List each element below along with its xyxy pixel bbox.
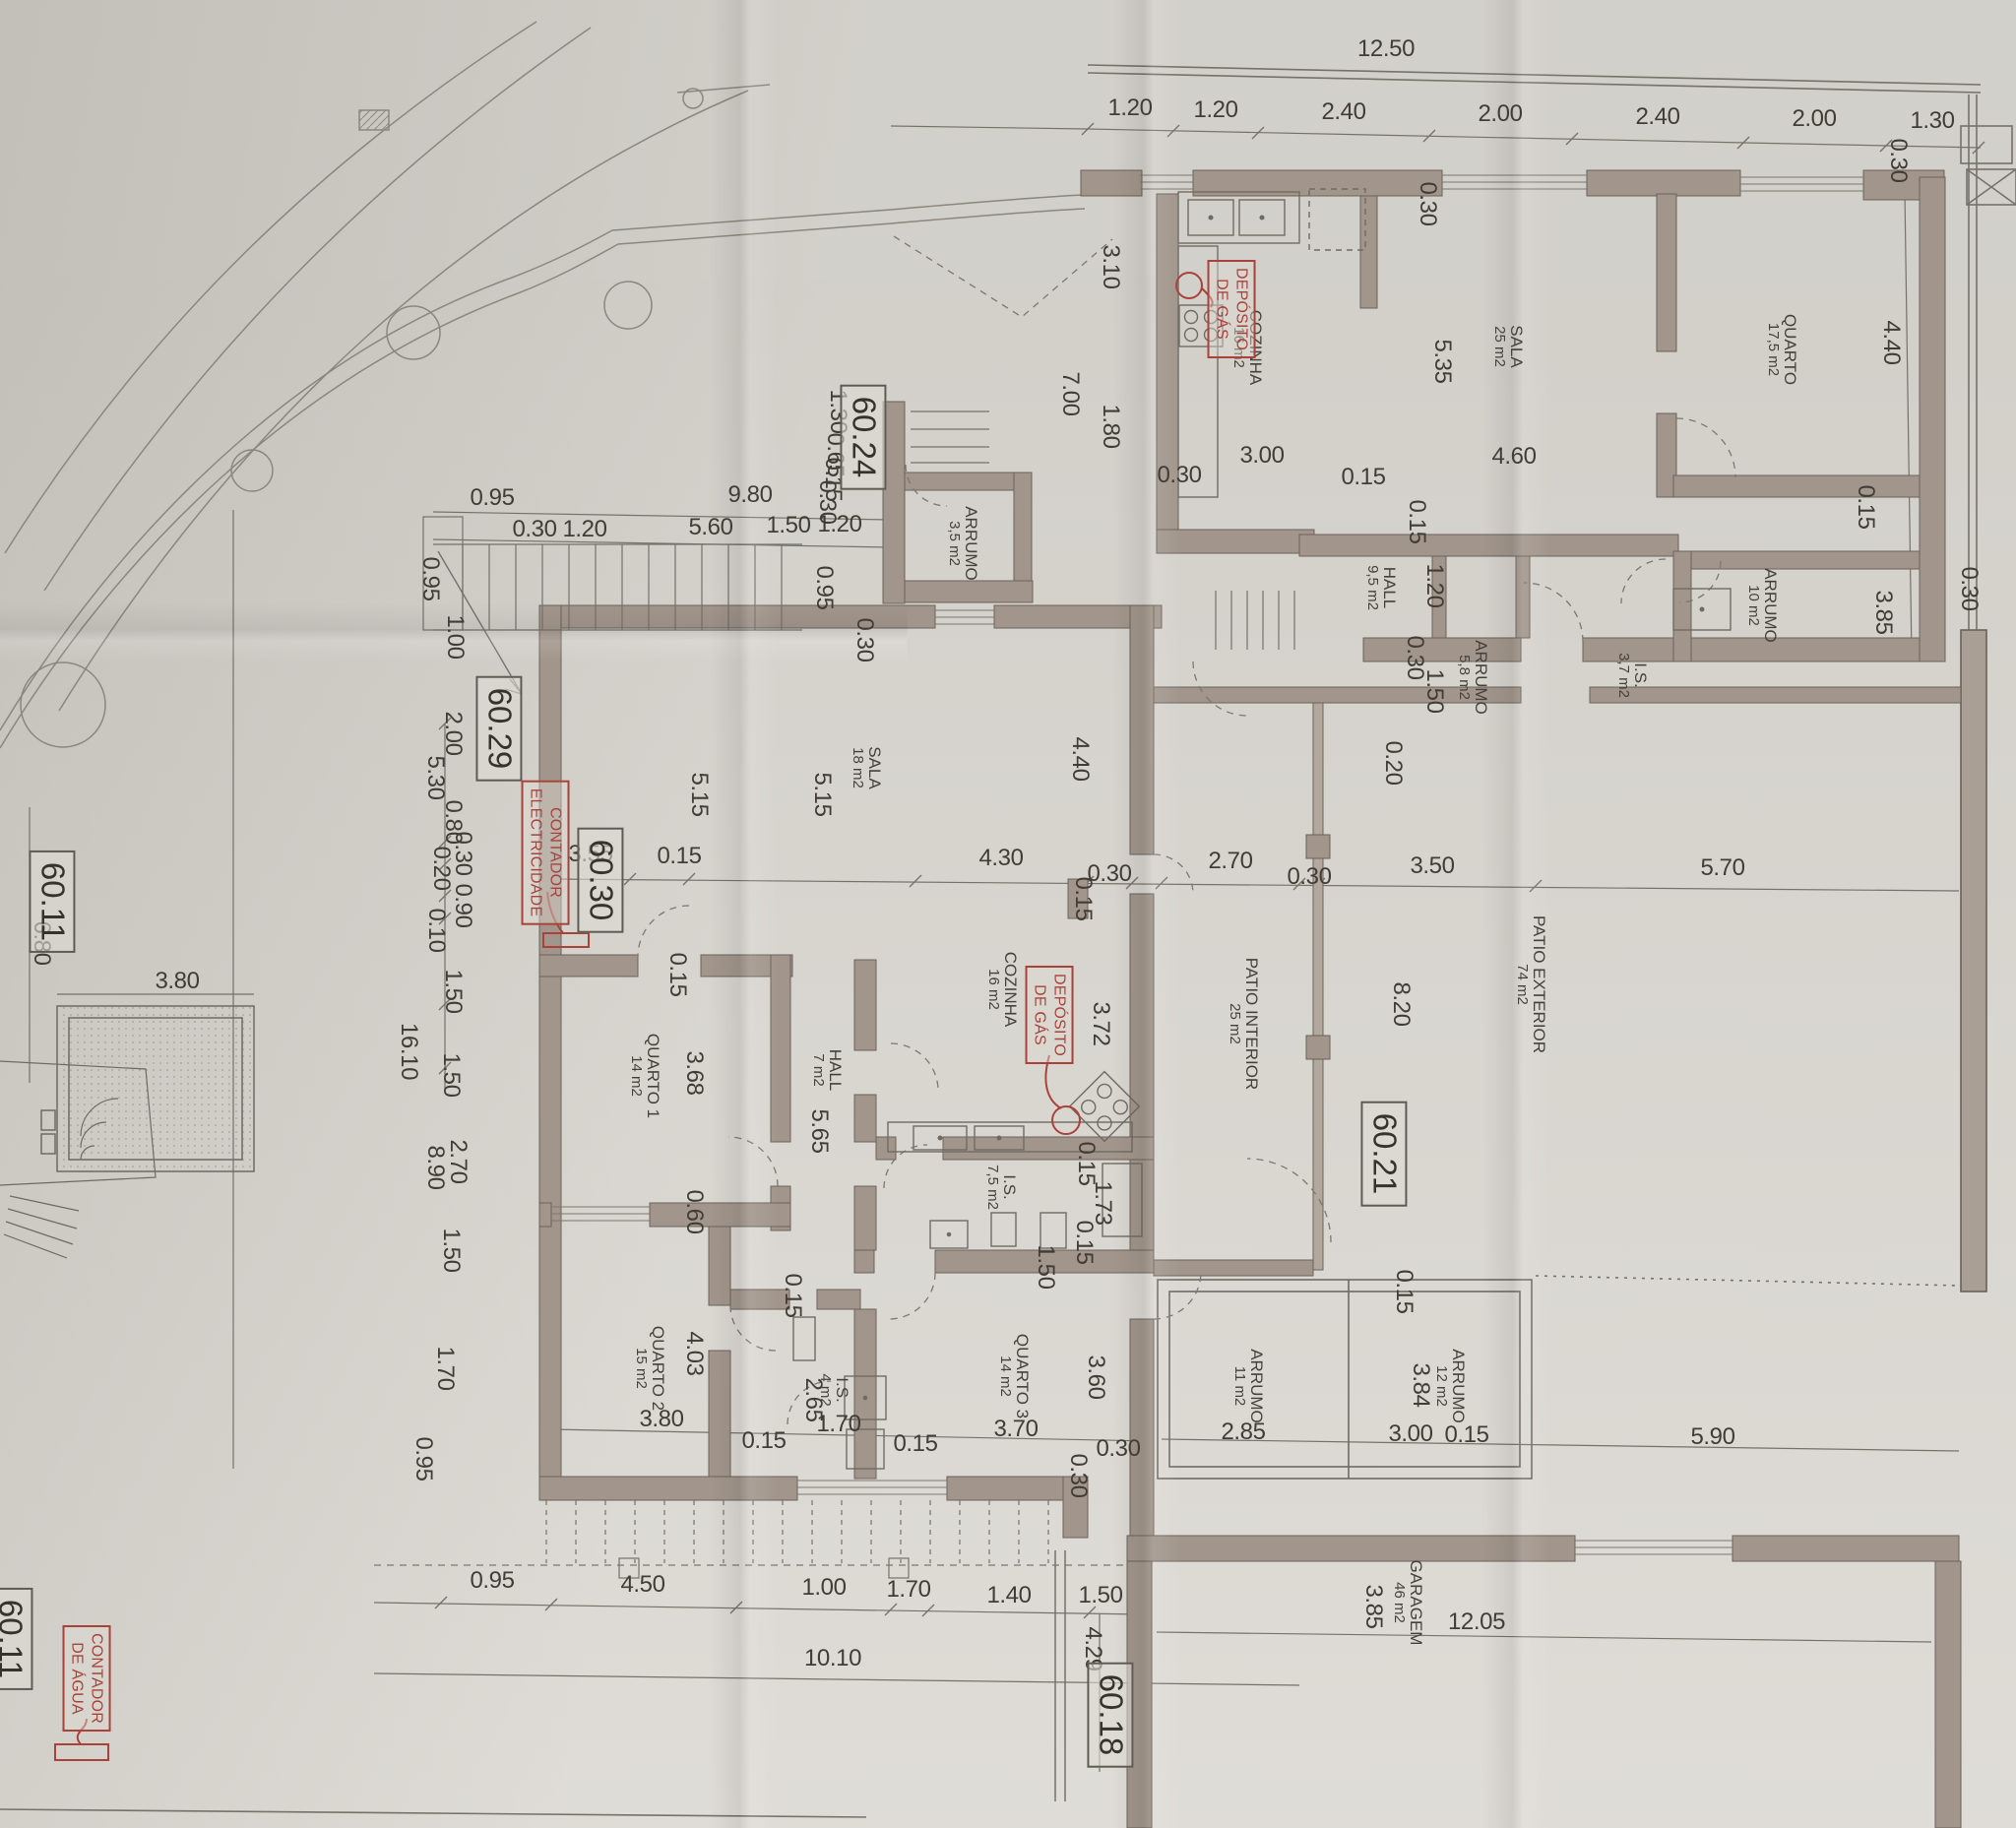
- dimension-label: 3.70: [993, 1416, 1038, 1443]
- room-label: PATIO EXTERIOR74 m2: [1513, 915, 1548, 1053]
- dimension-label: 0.30: [1096, 1435, 1140, 1463]
- room-area: 7,5 m2: [983, 1165, 1000, 1210]
- dimension-label: 1.70: [431, 1346, 459, 1390]
- dimension-label: 0.30: [850, 617, 878, 662]
- room-label: HALL9,5 m2: [1363, 565, 1399, 610]
- room-name: QUARTO 2: [649, 1326, 667, 1411]
- room-name: HALL: [826, 1049, 845, 1092]
- level-marker: 60.11: [30, 851, 76, 953]
- patio-walls: [1154, 687, 1961, 1276]
- dimension-label: 5.35: [1428, 339, 1456, 383]
- dimension-label: 2.40: [1635, 103, 1679, 131]
- room-name: HALL: [1380, 565, 1399, 610]
- upper-house-walls: [883, 170, 1945, 662]
- dimension-label: 3.85: [1359, 1584, 1387, 1628]
- dimension-label: 0.15: [1852, 484, 1879, 529]
- gas-bottle-icon-upper: [1176, 273, 1202, 298]
- room-label: ARRUMO10 m2: [1744, 568, 1780, 643]
- room-area: 3,5 m2: [945, 506, 962, 581]
- room-name: ARRUMO: [1247, 1349, 1266, 1423]
- level-marker: 60.11: [0, 1588, 32, 1690]
- dimension-label: 5.15: [808, 772, 836, 816]
- room-name: PATIO INTERIOR: [1242, 958, 1261, 1090]
- room-area: 11 m2: [1230, 1349, 1247, 1423]
- room-area: 15 m2: [632, 1326, 649, 1411]
- dimension-label: 2.70: [1208, 848, 1252, 875]
- room-label: I.S.7,5 m2: [983, 1165, 1019, 1210]
- dimension-label: 1.50: [437, 1052, 465, 1097]
- dimension-label: 0.30: [1287, 863, 1331, 891]
- dimension-label: 3.50: [1410, 852, 1454, 880]
- level-marker: 60.18: [1088, 1663, 1134, 1768]
- dimension-label: 4.50: [620, 1571, 664, 1599]
- garage-walls: [1055, 1536, 1961, 1828]
- dimension-label: 1.30: [1910, 107, 1954, 135]
- utility-annotation: CONTADOR ELECTRICIDADE: [521, 781, 569, 925]
- dimension-label: 0.30: [1955, 566, 1983, 610]
- room-label: QUARTO17,5 m2: [1764, 314, 1799, 385]
- dimension-label: 0.30: [1157, 462, 1201, 489]
- room-label: QUARTO 114 m2: [627, 1034, 662, 1118]
- room-name: I.S.: [1000, 1165, 1019, 1210]
- dimension-label: 0.15: [1403, 499, 1430, 543]
- room-label: COZINHA16 m2: [984, 952, 1020, 1028]
- dimension-label: 1.20: [1193, 96, 1237, 124]
- room-name: I.S.: [1631, 653, 1650, 698]
- room-area: 7 m2: [809, 1049, 826, 1092]
- dimension-label: 8.20: [1387, 981, 1415, 1026]
- dimension-label: 1.00: [801, 1574, 846, 1602]
- dimension-label: 5.90: [1690, 1423, 1734, 1451]
- room-area: 46 m2: [1390, 1560, 1407, 1646]
- room-area: 25 m2: [1226, 958, 1242, 1090]
- room-name: ARRUMO: [1472, 640, 1490, 715]
- dimension-label: 0.95: [470, 484, 514, 512]
- room-label: HALL7 m2: [809, 1049, 845, 1092]
- dimension-label: 4.30: [978, 845, 1023, 872]
- room-name: GARAGEM: [1407, 1560, 1425, 1646]
- dimension-label: 5.65: [805, 1108, 833, 1153]
- dimension-label: 1.40: [986, 1582, 1031, 1609]
- dimension-label: 10.10: [804, 1645, 861, 1672]
- dimension-label: 3.68: [680, 1050, 708, 1095]
- room-area: 12 m2: [1432, 1349, 1449, 1423]
- dimension-label: 4.40: [1066, 736, 1094, 781]
- room-label: ARRUMO12 m2: [1432, 1349, 1468, 1423]
- pool: [0, 1006, 254, 1258]
- room-label: I.S.3,7 m2: [1614, 653, 1650, 698]
- room-name: SALA: [1507, 325, 1526, 367]
- dimension-label: 4.40: [1877, 320, 1905, 364]
- dimension-label: 0.15: [1390, 1269, 1417, 1313]
- room-label: QUARTO 314 m2: [996, 1334, 1032, 1418]
- room-name: I.S.: [833, 1373, 851, 1406]
- dimension-label: 1.70: [886, 1576, 930, 1604]
- water-meter-icon: [55, 1744, 108, 1760]
- dimension-label: 2.00: [439, 711, 467, 755]
- utility-annotation: DEPÓSITO DE GÁS: [1025, 966, 1073, 1064]
- level-marker: 60.29: [476, 676, 523, 782]
- dimension-label: 3.00: [1239, 442, 1284, 470]
- dimension-label: 1.70: [816, 1411, 860, 1438]
- dimension-label: 1.50: [437, 1228, 465, 1272]
- dimension-label: 0.15: [1444, 1421, 1488, 1449]
- dimension-label: 0.15: [1070, 1220, 1098, 1264]
- dimension-label: 0.15: [1069, 876, 1097, 920]
- dimension-label: 0.30: [512, 516, 556, 543]
- dimension-label: 0.60: [680, 1189, 708, 1233]
- dimension-label: 0.20: [1379, 740, 1407, 785]
- room-label: SALA18 m2: [849, 746, 884, 788]
- floor-plan-photo: 12.501.201.202.402.002.402.001.300.300.3…: [0, 0, 2016, 1828]
- room-name: QUARTO: [1781, 314, 1799, 385]
- dimension-label: 1.50: [1032, 1244, 1059, 1289]
- dimension-label: 1.50: [1420, 668, 1448, 713]
- dimension-label: 2.00: [1792, 105, 1836, 133]
- dimension-label: 16.10: [395, 1023, 422, 1080]
- dimension-label: 3.10: [1097, 244, 1124, 288]
- dimension-label: 5.60: [688, 514, 732, 541]
- room-name: SALA: [865, 746, 884, 788]
- dimension-label: 3.80: [155, 968, 199, 995]
- dimension-label: 0.30: [1414, 181, 1441, 225]
- dimension-label: 0.15: [741, 1427, 786, 1455]
- dimension-label: 0.15: [1341, 464, 1385, 491]
- dimension-label: 0.10: [422, 908, 450, 952]
- dimension-label: 5.15: [685, 772, 713, 816]
- dimension-label: 0.95: [470, 1567, 514, 1595]
- dimension-label: 0.30: [1064, 1453, 1092, 1497]
- gas-bottle-icon-central: [1052, 1106, 1080, 1134]
- dimension-label: 0.95: [409, 1436, 437, 1481]
- dimension-label: 1.20: [1107, 95, 1152, 122]
- dimension-label: 5.30: [421, 755, 449, 799]
- room-label: SALA25 m2: [1490, 325, 1526, 367]
- dimension-label: 0.15: [1072, 1141, 1100, 1185]
- room-label: I.S.4 m2: [816, 1373, 851, 1406]
- room-area: 18 m2: [849, 746, 865, 788]
- room-area: 5,8 m2: [1455, 640, 1472, 715]
- dimension-label: 3.00: [1388, 1420, 1432, 1448]
- dimension-label: 3.84: [1407, 1362, 1434, 1407]
- room-area: 25 m2: [1490, 325, 1507, 367]
- dimension-label: 0.95: [810, 565, 838, 609]
- level-marker: 60.30: [578, 828, 624, 933]
- room-label: GARAGEM46 m2: [1390, 1560, 1425, 1646]
- dimension-label: 4.03: [680, 1331, 708, 1375]
- room-area: 16 m2: [984, 952, 1001, 1028]
- level-marker: 60.21: [1361, 1102, 1408, 1207]
- dimension-label: 0.15: [893, 1430, 937, 1458]
- room-name: ARRUMO: [1449, 1349, 1468, 1423]
- room-label: ARRUMO3,5 m2: [945, 506, 980, 581]
- room-area: 14 m2: [627, 1034, 644, 1118]
- utility-annotation: CONTADOR DE ÁGUA: [62, 1625, 110, 1732]
- dimension-label: 3.60: [1082, 1355, 1109, 1399]
- room-label: ARRUMO5,8 m2: [1455, 640, 1490, 715]
- plan-drawing: [0, 0, 2016, 1828]
- dimension-label: 1.20: [817, 511, 861, 538]
- room-name: QUARTO 1: [644, 1034, 662, 1118]
- room-area: 74 m2: [1513, 915, 1530, 1053]
- stove-icon-central: [1070, 1072, 1140, 1142]
- dimension-label: 1.80: [1097, 404, 1124, 448]
- dimension-label: 0.95: [416, 556, 444, 600]
- room-area: 14 m2: [996, 1334, 1013, 1418]
- room-name: COZINHA: [1001, 952, 1020, 1028]
- dimension-label: 0.90: [449, 883, 476, 927]
- room-area: 3,7 m2: [1614, 653, 1631, 698]
- room-area: 9,5 m2: [1363, 565, 1380, 610]
- room-label: PATIO INTERIOR25 m2: [1226, 958, 1261, 1090]
- dimension-label: 9.80: [727, 481, 772, 509]
- dimension-label: 3.85: [1869, 590, 1897, 634]
- room-area: 17,5 m2: [1764, 314, 1781, 385]
- dimension-label: 2.00: [1478, 100, 1522, 128]
- dimension-label: 7.00: [1056, 371, 1084, 415]
- dimension-label: 1.20: [562, 516, 606, 543]
- room-area: 10 m2: [1744, 568, 1761, 643]
- dimension-label: 1.50: [1078, 1582, 1122, 1609]
- dimension-label: 1.00: [441, 614, 469, 659]
- dimension-label: 4.60: [1491, 443, 1536, 471]
- dimension-label: 0.15: [657, 843, 701, 870]
- dimension-label: 12.50: [1357, 35, 1415, 63]
- dimension-lines: [30, 123, 1984, 1772]
- dimension-label: 0.15: [663, 952, 691, 996]
- room-area: 4 m2: [816, 1373, 833, 1406]
- dimension-label: 12.05: [1448, 1608, 1505, 1636]
- dimension-label: 8.90: [421, 1145, 449, 1189]
- dimension-label: 0.15: [779, 1273, 806, 1317]
- utility-annotation: DEPÓSITO DE GÁS: [1207, 260, 1255, 358]
- dimension-label: 3.72: [1087, 1001, 1114, 1045]
- room-name: ARRUMO: [1761, 568, 1780, 643]
- room-name: ARRUMO: [962, 506, 980, 581]
- room-label: ARRUMO11 m2: [1230, 1349, 1266, 1423]
- level-marker: 60.24: [841, 385, 887, 490]
- dimension-label: 5.70: [1700, 854, 1744, 882]
- room-name: QUARTO 3: [1013, 1334, 1032, 1418]
- dimension-label: 1.73: [1089, 1180, 1116, 1225]
- dimension-label: 1.50: [766, 512, 810, 539]
- dimension-label: 1.50: [439, 969, 467, 1013]
- dimension-label: 2.40: [1321, 98, 1365, 126]
- dimension-label: 0.30: [1884, 138, 1912, 182]
- room-name: PATIO EXTERIOR: [1530, 915, 1548, 1053]
- room-label: QUARTO 215 m2: [632, 1326, 667, 1411]
- dimension-label: 1.20: [1420, 563, 1448, 607]
